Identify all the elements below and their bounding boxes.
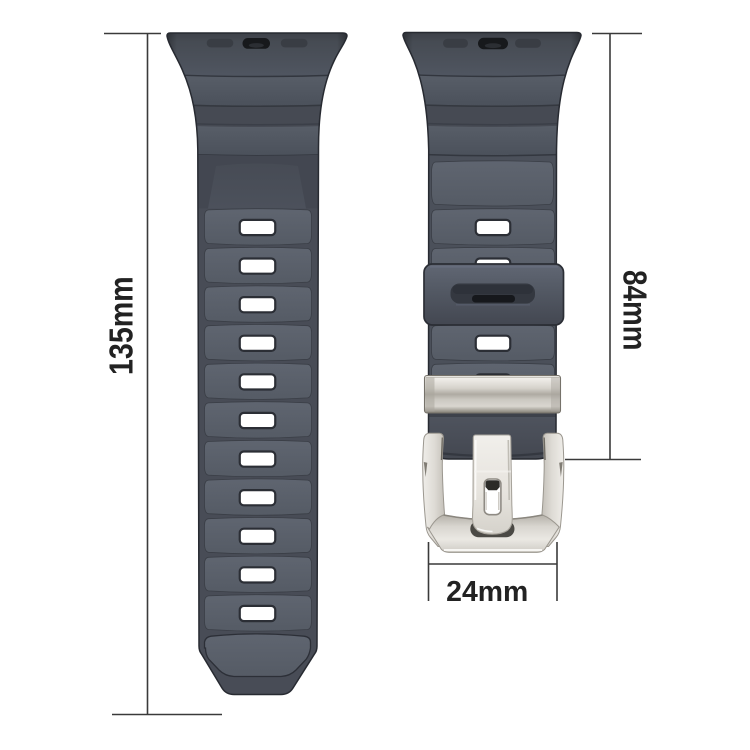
svg-text:24mm: 24mm xyxy=(446,576,528,608)
svg-text:84mm: 84mm xyxy=(616,270,653,351)
svg-text:135mm: 135mm xyxy=(103,276,140,375)
